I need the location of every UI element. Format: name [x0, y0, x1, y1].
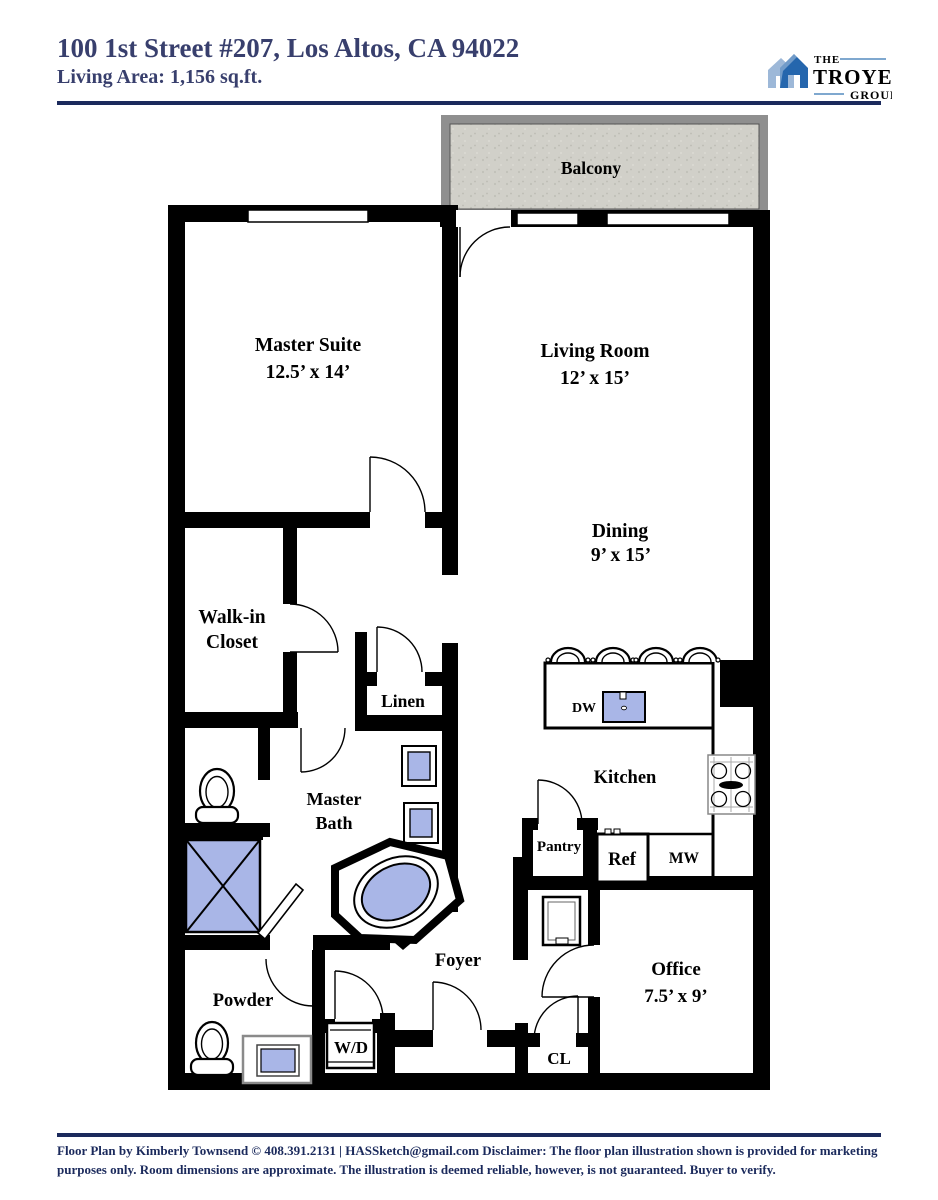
room-label-foyer: Foyer	[435, 951, 481, 971]
room-dims-master-suite: 12.5’ x 14’	[266, 362, 351, 383]
room-dims-office: 7.5’ x 9’	[644, 986, 708, 1007]
master-suite-door	[370, 457, 425, 512]
room-label-living-room: Living Room	[541, 341, 650, 362]
pantry-door	[538, 780, 582, 824]
closet-cl-door	[534, 996, 578, 1040]
label-washer-dryer: W/D	[334, 1038, 368, 1057]
stove-icon	[708, 755, 755, 814]
room-label-linen: Linen	[381, 691, 425, 711]
bathtub-icon	[335, 842, 460, 942]
floorplan-drawing: Balcony Master Suite 12.5’ x 14’ Living …	[0, 0, 938, 1200]
room-dims-living-room: 12’ x 15’	[560, 368, 630, 389]
room-label-master-bath-2: Bath	[315, 813, 352, 833]
room-label-master-suite: Master Suite	[255, 335, 362, 356]
room-label-pantry: Pantry	[537, 839, 582, 855]
dishwasher-sink-icon	[603, 692, 645, 722]
walk-in-closet-door	[290, 604, 338, 652]
powder-toilet-icon	[191, 1022, 233, 1075]
footer-disclaimer: Floor Plan by Kimberly Townsend © 408.39…	[57, 1141, 883, 1179]
water-heater-icon	[543, 897, 580, 945]
balcony-door	[460, 227, 510, 277]
floor-plan-page: 100 1st Street #207, Los Altos, CA 94022…	[0, 0, 938, 1200]
room-label-master-bath-1: Master	[307, 789, 362, 809]
room-label-dining: Dining	[592, 521, 649, 542]
label-refrigerator: Ref	[608, 850, 637, 870]
room-label-cl: CL	[547, 1049, 571, 1068]
room-label-walk-in-closet-1: Walk-in	[198, 607, 265, 628]
label-microwave: MW	[669, 850, 700, 867]
front-entry-door	[433, 982, 481, 1030]
room-label-kitchen: Kitchen	[594, 768, 657, 788]
bar-stool-icons	[546, 648, 720, 662]
master-bath-door	[301, 728, 345, 772]
powder-vanity-icon	[243, 1036, 311, 1083]
windows	[248, 210, 729, 227]
shower-icon	[183, 834, 303, 939]
office-door	[542, 945, 594, 997]
room-label-office: Office	[651, 959, 701, 980]
room-label-balcony: Balcony	[561, 158, 622, 178]
bath-toilet-icon	[196, 769, 238, 823]
room-label-walk-in-closet-2: Closet	[206, 632, 258, 653]
label-dishwasher: DW	[572, 701, 596, 716]
wd-door	[335, 971, 383, 1019]
room-dims-dining: 9’ x 15’	[591, 545, 651, 566]
room-label-powder: Powder	[213, 991, 274, 1011]
footer-divider	[57, 1133, 881, 1137]
linen-door	[377, 627, 422, 672]
bath-sink-icons	[402, 746, 438, 843]
